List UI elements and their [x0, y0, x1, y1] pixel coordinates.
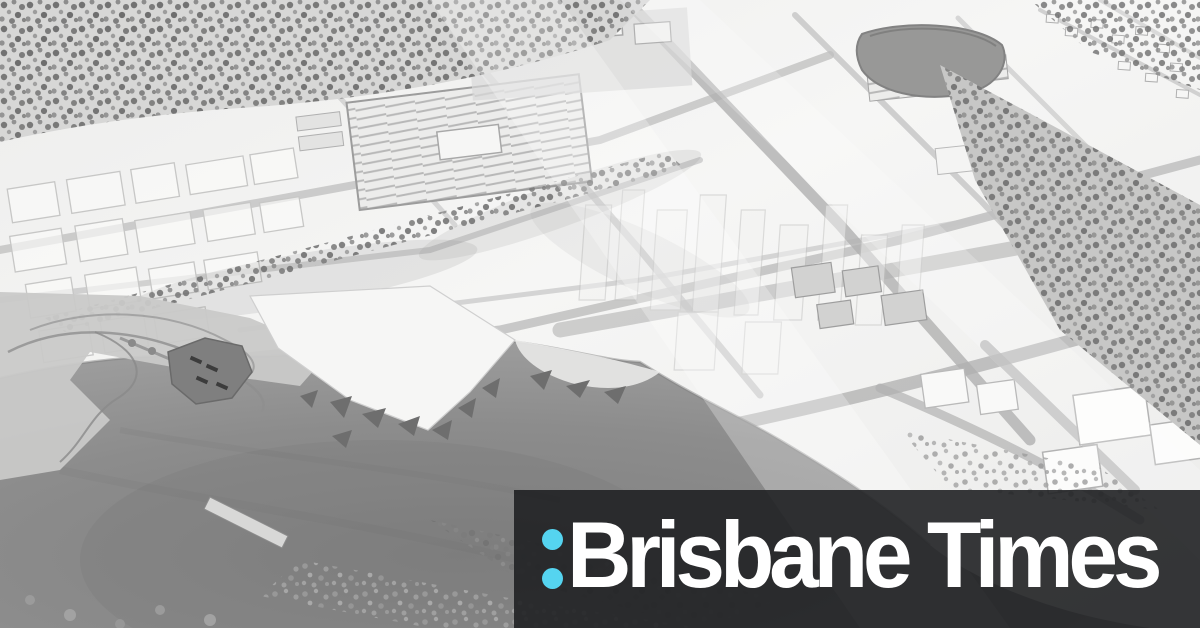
brand-lockup: Brisbane Times	[514, 512, 1188, 606]
share-card: Brisbane Times	[0, 0, 1200, 628]
brand-colon-icon	[542, 529, 563, 589]
colon-bottom-dot	[542, 568, 563, 589]
publication-name: Brisbane Times	[567, 508, 1157, 602]
brand-banner: Brisbane Times	[514, 490, 1200, 628]
colon-top-dot	[542, 529, 563, 550]
